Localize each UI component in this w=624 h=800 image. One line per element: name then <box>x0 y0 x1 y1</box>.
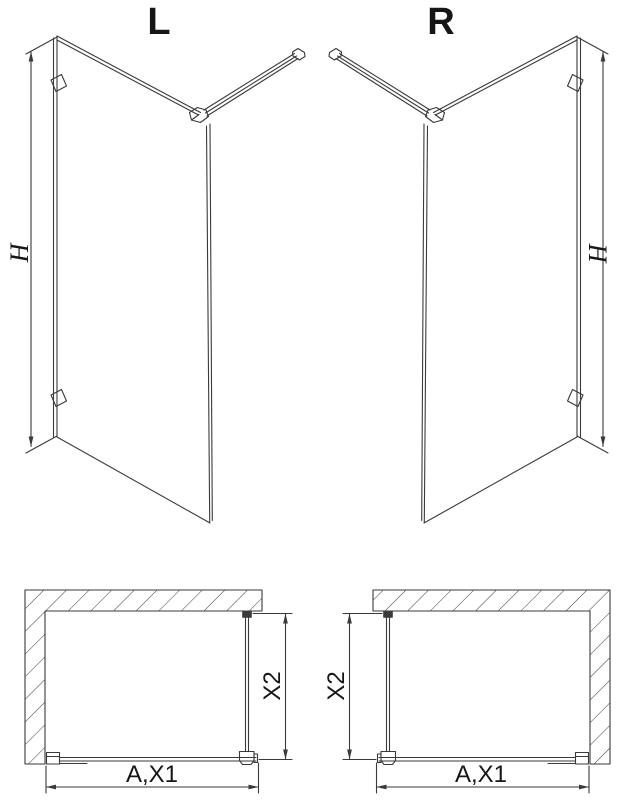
width-dimension-label-left: A,X1 <box>126 761 178 788</box>
wall-hatch-right <box>373 590 610 764</box>
height-dimension-label-left: H <box>5 242 34 263</box>
depth-dimension-label-right: X2 <box>323 671 350 700</box>
wall-hatch-left <box>25 590 262 764</box>
variant-label-right: R <box>427 1 454 43</box>
height-dimension-label-right: H <box>583 243 612 264</box>
width-dimension-label-right: A,X1 <box>455 761 507 788</box>
panel-3d-right <box>329 36 608 523</box>
shower-walkin-technical-drawing: L R H H X2 X2 A,X1 A,X1 <box>0 0 624 800</box>
depth-dimension-label-left: X2 <box>259 671 286 700</box>
panel-3d-left <box>26 36 305 523</box>
variant-label-left: L <box>147 1 170 43</box>
